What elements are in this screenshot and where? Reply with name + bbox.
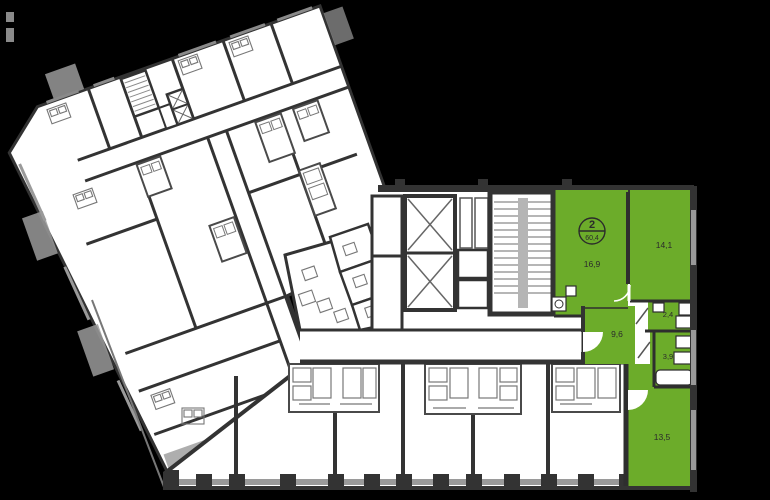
svg-text:3,9: 3,9 — [663, 352, 673, 361]
svg-text:2,4: 2,4 — [663, 310, 673, 319]
svg-text:2: 2 — [589, 219, 595, 231]
svg-text:60,4: 60,4 — [585, 235, 599, 242]
svg-text:16,9: 16,9 — [584, 259, 601, 269]
svg-text:9,6: 9,6 — [611, 329, 623, 339]
svg-text:14,1: 14,1 — [656, 240, 673, 250]
svg-text:13,5: 13,5 — [654, 432, 671, 442]
